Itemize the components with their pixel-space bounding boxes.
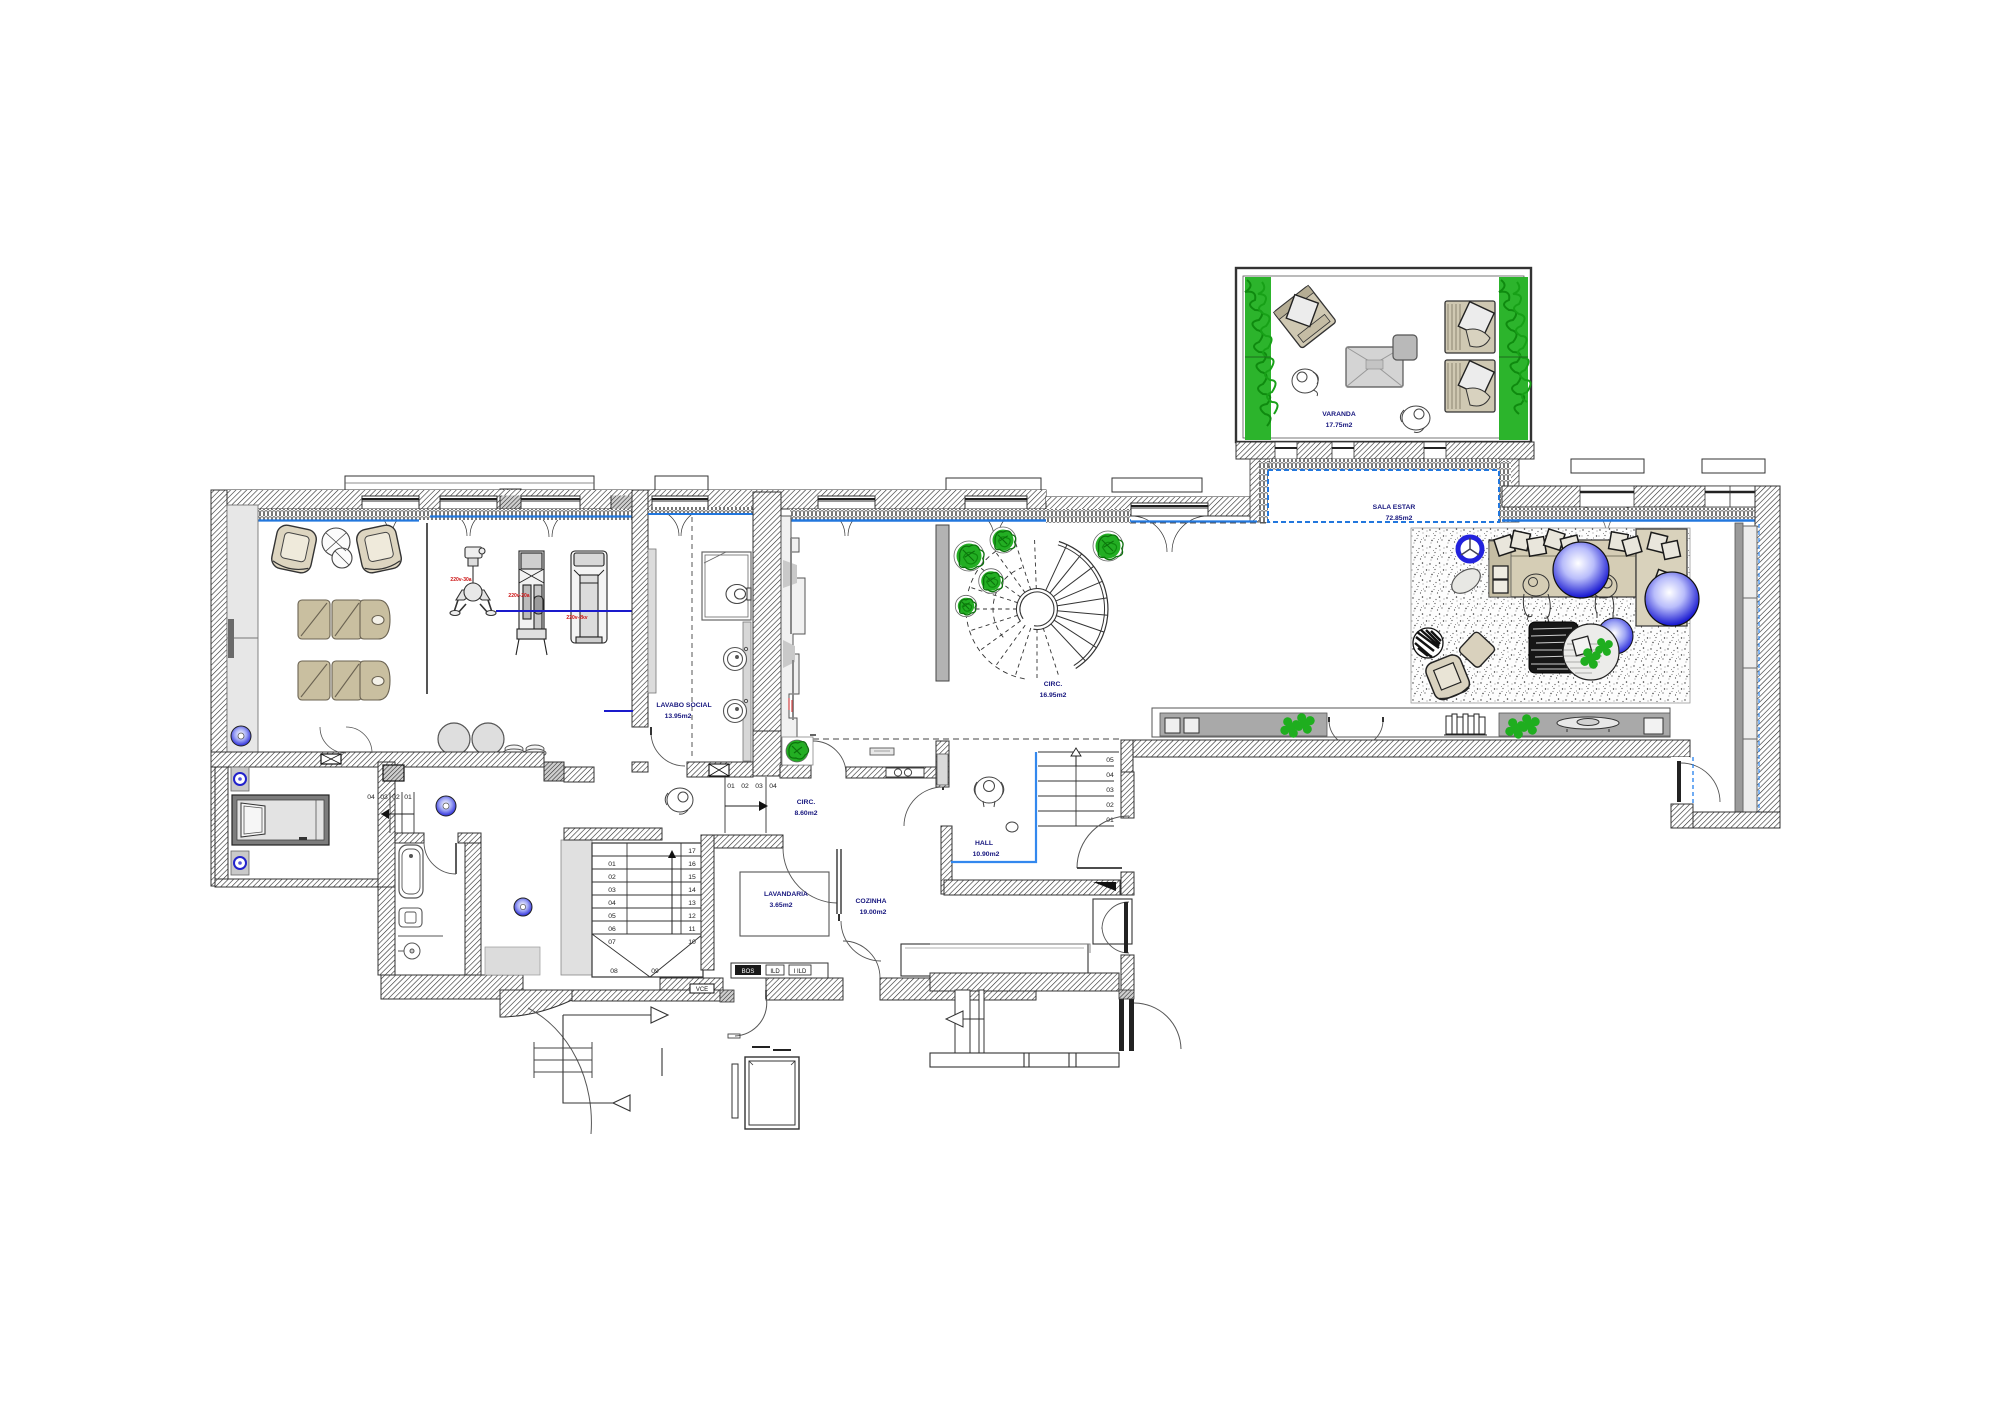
svg-text:11: 11 (688, 926, 695, 933)
svg-text:13: 13 (688, 900, 696, 907)
svg-text:8.60m2: 8.60m2 (794, 810, 817, 817)
svg-text:VCE: VCE (696, 987, 708, 993)
svg-text:04: 04 (769, 783, 777, 790)
svg-text:02: 02 (608, 874, 616, 881)
svg-text:LAVANDARIA: LAVANDARIA (764, 891, 808, 898)
svg-text:220v-30a: 220v-30a (450, 577, 471, 583)
svg-text:09: 09 (651, 968, 659, 975)
svg-text:ILD: ILD (770, 969, 780, 975)
svg-text:COZINHA: COZINHA (856, 898, 887, 905)
svg-text:02: 02 (741, 783, 749, 790)
svg-text:16: 16 (688, 861, 696, 868)
svg-text:72.85m2: 72.85m2 (1386, 515, 1413, 522)
svg-text:13.95m2: 13.95m2 (665, 713, 692, 720)
svg-text:01: 01 (727, 783, 735, 790)
svg-text:02: 02 (392, 794, 400, 801)
svg-text:VARANDA: VARANDA (1322, 411, 1356, 418)
svg-text:02: 02 (1106, 802, 1114, 809)
svg-text:04: 04 (1106, 772, 1114, 779)
svg-text:05: 05 (608, 913, 616, 920)
svg-text:03: 03 (1106, 787, 1114, 794)
svg-text:14: 14 (688, 887, 696, 894)
svg-text:I ILD: I ILD (794, 969, 807, 975)
svg-text:220v-2kv: 220v-2kv (566, 615, 587, 621)
svg-text:01: 01 (404, 794, 412, 801)
svg-text:15: 15 (688, 874, 696, 881)
svg-text:17.75m2: 17.75m2 (1326, 422, 1353, 429)
svg-text:19.00m2: 19.00m2 (860, 909, 887, 916)
svg-text:10: 10 (688, 939, 696, 946)
svg-text:06: 06 (608, 926, 616, 933)
svg-text:HALL: HALL (975, 840, 993, 847)
svg-text:220v-20a: 220v-20a (508, 593, 529, 599)
svg-text:03: 03 (380, 794, 388, 801)
svg-text:CIRC.: CIRC. (1044, 681, 1063, 688)
svg-text:03: 03 (608, 887, 616, 894)
svg-text:04: 04 (367, 794, 375, 801)
svg-text:04: 04 (608, 900, 616, 907)
svg-text:12: 12 (688, 913, 696, 920)
svg-text:03: 03 (755, 783, 763, 790)
svg-text:BOS: BOS (742, 969, 755, 975)
svg-text:08: 08 (610, 968, 618, 975)
svg-text:CIRC.: CIRC. (797, 799, 816, 806)
svg-text:LAVABO SOCIAL: LAVABO SOCIAL (656, 702, 711, 709)
svg-text:05: 05 (1106, 757, 1114, 764)
svg-text:SALA ESTAR: SALA ESTAR (1373, 504, 1416, 511)
svg-text:10.90m2: 10.90m2 (973, 851, 1000, 858)
svg-text:3.65m2: 3.65m2 (769, 902, 792, 909)
svg-text:07: 07 (608, 939, 616, 946)
svg-text:16.95m2: 16.95m2 (1040, 692, 1067, 699)
svg-text:01: 01 (608, 861, 616, 868)
svg-text:17: 17 (688, 848, 696, 855)
